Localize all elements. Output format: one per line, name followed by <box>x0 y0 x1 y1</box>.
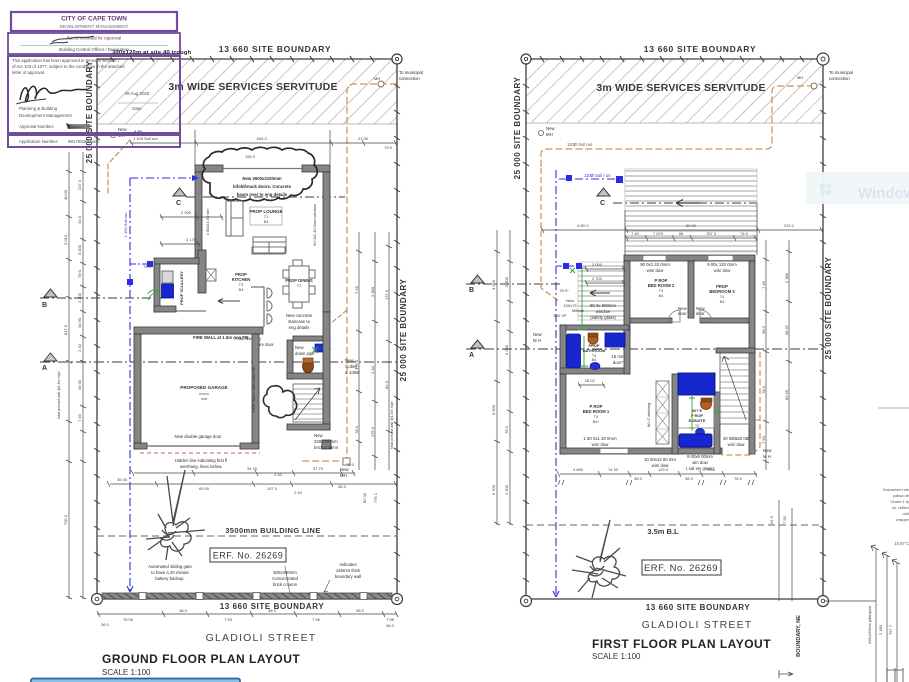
svg-text:2 300: 2 300 <box>504 276 509 287</box>
svg-text:A: A <box>469 352 474 359</box>
svg-text:fire door: fire door <box>258 342 274 347</box>
svg-text:PROP LOUNGE: PROP LOUNGE <box>249 209 282 214</box>
svg-text:13 660 SITE BOUNDARY: 13 660 SITE BOUNDARY <box>646 603 751 612</box>
svg-text:817 0: 817 0 <box>63 324 68 335</box>
svg-text:7 40: 7 40 <box>631 231 640 236</box>
svg-text:New: New <box>314 433 323 438</box>
svg-text:New: New <box>533 332 542 337</box>
svg-text:DEVELOPMENT MANAGEMENT: DEVELOPMENT MANAGEMENT <box>60 24 129 29</box>
svg-text:4 00x14 00 win: 4 00x14 00 win <box>205 209 210 236</box>
svg-text:34 0: 34 0 <box>77 215 82 224</box>
svg-text:2 700: 2 700 <box>592 276 603 281</box>
svg-text:of Act 103 of 1977, subject to: of Act 103 of 1977, subject to the condi… <box>12 64 125 69</box>
svg-text:25 000 SITE BOUNDARY: 25 000 SITE BOUNDARY <box>513 77 522 180</box>
svg-text:ENSUITE: ENSUITE <box>689 418 706 423</box>
svg-text:PROPOSED GARAGE: PROPOSED GARAGE <box>180 385 227 390</box>
svg-text:36 0: 36 0 <box>685 476 694 481</box>
svg-text:25 000 SITE BOUNDARY: 25 000 SITE BOUNDARY <box>824 257 833 360</box>
svg-text:GROUND FLOOR PLAN LAYOUT: GROUND FLOOR PLAN LAYOUT <box>102 652 300 666</box>
svg-text:2 40: 2 40 <box>274 472 283 477</box>
svg-text:B4: B4 <box>592 358 596 362</box>
svg-text:7 96: 7 96 <box>312 617 321 622</box>
svg-text:Galvanised ste: Galvanised ste <box>883 487 909 492</box>
svg-text:78 0: 78 0 <box>707 467 716 472</box>
svg-text:82 0: 82 0 <box>384 380 389 389</box>
svg-text:6 000: 6 000 <box>491 404 496 415</box>
svg-text:New: New <box>546 126 555 131</box>
svg-text:ck, refleci: ck, refleci <box>892 505 909 510</box>
svg-text:4 000: 4 000 <box>491 279 496 290</box>
svg-text:81 99: 81 99 <box>784 389 789 400</box>
svg-text:to have a 20 minute: to have a 20 minute <box>151 570 189 575</box>
svg-text:36 0: 36 0 <box>179 608 188 613</box>
svg-text:140mm thick: 140mm thick <box>336 568 361 573</box>
svg-text:7 46: 7 46 <box>354 285 359 294</box>
svg-text:4 80 C: 4 80 C <box>577 223 589 228</box>
svg-text:300x300mm: 300x300mm <box>273 570 297 575</box>
svg-text:bifold/stack doors. Concrete: bifold/stack doors. Concrete <box>233 184 292 189</box>
svg-text:219 1: 219 1 <box>784 223 795 228</box>
svg-text:battery backup.: battery backup. <box>155 576 184 581</box>
svg-text:PROP DINING: PROP DINING <box>285 278 313 283</box>
svg-text:KITCHEN: KITCHEN <box>232 277 251 282</box>
svg-text:T4: T4 <box>659 289 663 293</box>
svg-text:win dow: win dow <box>692 460 708 465</box>
svg-text:B: B <box>42 302 47 309</box>
svg-text:ERF. No. 26269: ERF. No. 26269 <box>213 551 284 561</box>
svg-text:(safety glass): (safety glass) <box>590 315 616 320</box>
svg-text:98170538/ Bem: 98170538/ Bem <box>68 139 99 144</box>
svg-text:172 0: 172 0 <box>384 289 389 300</box>
svg-text:brick column: brick column <box>314 445 339 450</box>
svg-text:T4: T4 <box>695 424 699 428</box>
svg-text:M H: M H <box>533 338 541 343</box>
svg-text:16 mm: 16 mm <box>611 354 625 359</box>
svg-text:BOUNDARY, NE: BOUNDARY, NE <box>796 615 802 657</box>
svg-text:3m WIDE SERVICES SERVITUDE: 3m WIDE SERVICES SERVITUDE <box>596 82 765 94</box>
svg-text:T3: T3 <box>239 283 243 287</box>
svg-text:110Ø Soil run: 110Ø Soil run <box>567 142 593 147</box>
svg-text:78 0: 78 0 <box>761 385 766 394</box>
svg-text:600 C: 600 C <box>257 136 268 141</box>
svg-text:90 0x1 20 0mm: 90 0x1 20 0mm <box>640 262 670 267</box>
svg-text:3500mm BUILDING LINE: 3500mm BUILDING LINE <box>225 526 321 535</box>
svg-text:38 0: 38 0 <box>761 325 766 334</box>
svg-text:2 180: 2 180 <box>878 624 883 635</box>
svg-text:3 010: 3 010 <box>63 234 68 245</box>
svg-text:78 0*: 78 0* <box>559 288 569 293</box>
svg-text:eng details: eng details <box>289 325 310 330</box>
svg-text:Development Management: Development Management <box>19 113 72 118</box>
svg-text:BED ROOM 1: BED ROOM 1 <box>583 409 610 414</box>
svg-text:door*: door* <box>613 360 624 365</box>
svg-text:340x340mm: 340x340mm <box>314 439 338 444</box>
svg-text:36 00: 36 00 <box>117 477 128 482</box>
svg-text:B4: B4 <box>720 300 725 304</box>
svg-text:2 300: 2 300 <box>504 484 509 495</box>
svg-text:78 0: 78 0 <box>504 425 509 434</box>
svg-text:total precast wall @1.8m high: total precast wall @1.8m high <box>390 401 394 448</box>
svg-text:B4: B4 <box>659 294 664 298</box>
svg-text:T4: T4 <box>720 295 724 299</box>
svg-text:78 0: 78 0 <box>354 425 359 434</box>
svg-text:776 1: 776 1 <box>373 492 378 503</box>
svg-text:7 46: 7 46 <box>761 280 766 289</box>
svg-text:win/ dow: win/ dow <box>647 268 665 273</box>
svg-text:This application has been: This application has been approved in te… <box>12 58 120 63</box>
svg-text:74 30: 74 30 <box>608 467 619 472</box>
svg-text:107 0: 107 0 <box>267 486 278 491</box>
svg-text:40 00: 40 00 <box>63 189 68 200</box>
svg-text:40 0Ø&50 0Ø: 40 0Ø&50 0Ø <box>723 436 750 441</box>
svg-text:To municipal: To municipal <box>399 70 423 75</box>
svg-text:Automated sliding gate: Automated sliding gate <box>148 564 192 569</box>
svg-text:176 0: 176 0 <box>354 359 359 370</box>
svg-text:90 0x1 40 0mm window: 90 0x1 40 0mm window <box>312 204 317 246</box>
svg-text:mono: mono <box>199 392 209 396</box>
svg-text:C: C <box>176 200 181 207</box>
svg-text:25 000 SITE BOUNDARY: 25 000 SITE BOUNDARY <box>399 279 408 382</box>
svg-text:New: New <box>295 345 304 350</box>
svg-text:T2: T2 <box>297 284 301 288</box>
svg-text:To municipal: To municipal <box>829 70 853 75</box>
svg-text:beam over to eng details: beam over to eng details <box>237 192 288 197</box>
svg-text:Approval Number:: Approval Number: <box>19 124 54 129</box>
svg-text:win/ dow: win/ dow <box>714 268 732 273</box>
svg-text:1 80 0x1 20 0mm: 1 80 0x1 20 0mm <box>583 436 617 441</box>
svg-text:10 00x12 00 mm: 10 00x12 00 mm <box>644 457 676 462</box>
svg-text:175 0: 175 0 <box>370 426 375 437</box>
svg-text:Grade 1 ty: Grade 1 ty <box>890 499 909 504</box>
svg-text:28 0C: 28 0C <box>585 378 596 383</box>
svg-text:MH: MH <box>340 473 347 478</box>
svg-text:MH: MH <box>546 132 553 137</box>
svg-text:34 90: 34 90 <box>77 317 82 328</box>
svg-text:Application Number:: Application Number: <box>19 139 59 144</box>
svg-text:T1: T1 <box>264 215 268 219</box>
svg-text:win/ dow: win/ dow <box>728 442 746 447</box>
svg-text:7 93: 7 93 <box>224 617 233 622</box>
svg-text:total precast wall @1.8m high: total precast wall @1.8m high <box>57 371 61 418</box>
svg-text:Indicates: Indicates <box>339 562 356 567</box>
svg-text:CITY OF CAPE TOWN: CITY OF CAPE TOWN <box>61 16 127 23</box>
svg-text:PROP SCULLERY: PROP SCULLERY <box>179 271 184 305</box>
svg-text:MH: MH <box>374 76 380 81</box>
svg-text:BATHROOM: BATHROOM <box>583 348 606 353</box>
svg-text:2 000: 2 000 <box>592 262 603 267</box>
svg-text:78 0: 78 0 <box>77 269 82 278</box>
svg-text:08 Aug 2020: 08 Aug 2020 <box>125 91 150 96</box>
svg-text:9 00x6 00mm: 9 00x6 00mm <box>687 454 713 459</box>
svg-text:7 98: 7 98 <box>386 617 395 622</box>
svg-text:123 0: 123 0 <box>658 467 669 472</box>
svg-text:37 70: 37 70 <box>313 466 324 471</box>
svg-text:New: New <box>118 127 127 132</box>
svg-text:767 3: 767 3 <box>706 231 717 236</box>
svg-text:36 0: 36 0 <box>338 484 347 489</box>
svg-text:7 90: 7 90 <box>782 515 787 524</box>
svg-text:199 0: 199 0 <box>245 154 256 159</box>
svg-text:New 3600x2100mm: New 3600x2100mm <box>242 176 281 181</box>
svg-text:1 100 Soil run: 1 100 Soil run <box>123 213 128 238</box>
svg-text:Date: Date <box>132 106 142 111</box>
svg-text:60 00: 60 00 <box>199 486 210 491</box>
svg-text:door: door <box>678 311 687 316</box>
svg-text:74 0: 74 0 <box>740 231 749 236</box>
svg-text:7 90: 7 90 <box>761 435 766 444</box>
svg-text:2 40: 2 40 <box>370 365 375 374</box>
svg-text:96: 96 <box>679 231 684 236</box>
svg-text:B: B <box>469 287 474 294</box>
svg-text:Hidden line indicating first f: Hidden line indicating first fl <box>175 458 227 463</box>
svg-text:78 0: 78 0 <box>143 264 152 269</box>
svg-text:797 7: 797 7 <box>888 624 893 635</box>
svg-text:Planning & Building: Planning & Building <box>19 106 58 111</box>
svg-text:B4: B4 <box>264 220 269 224</box>
svg-text:2 380: 2 380 <box>370 286 375 297</box>
svg-text:boundary wall: boundary wall <box>335 574 362 579</box>
svg-text:W.I.C shelving: W.I.C shelving <box>647 403 651 427</box>
svg-text:B4: B4 <box>239 288 244 292</box>
svg-text:MH: MH <box>797 75 803 80</box>
svg-text:1 100 Soil run: 1 100 Soil run <box>133 136 158 141</box>
svg-text:GLADIOLI STREET: GLADIOLI STREET <box>206 632 317 644</box>
svg-text:76 0: 76 0 <box>346 462 355 467</box>
svg-text:3m WIDE SERVICES SERVITUDE: 3m WIDE SERVICES SERVITUDE <box>168 81 337 93</box>
svg-text:New: New <box>763 448 772 453</box>
svg-text:letter of approval.: letter of approval. <box>12 70 45 75</box>
svg-text:staircase to: staircase to <box>288 319 311 324</box>
svg-text:overhang, lines below.: overhang, lines below. <box>180 464 223 469</box>
svg-text:61 9: 61 9 <box>769 515 774 524</box>
svg-text:76 00: 76 00 <box>123 617 134 622</box>
svg-text:brick column: brick column <box>273 582 298 587</box>
svg-text:6 700: 6 700 <box>491 484 496 495</box>
svg-text:4 890: 4 890 <box>573 467 584 472</box>
svg-text:Windows: Windows <box>858 185 909 202</box>
svg-text:unti: unti <box>903 511 909 516</box>
svg-text:36 0: 36 0 <box>268 608 277 613</box>
svg-text:82 00: 82 00 <box>362 492 367 503</box>
svg-text:79 0: 79 0 <box>384 145 393 150</box>
svg-text:2 40: 2 40 <box>77 343 82 352</box>
svg-text:21 90: 21 90 <box>358 136 369 141</box>
svg-text:2 380: 2 380 <box>784 272 789 283</box>
svg-text:3 000: 3 000 <box>504 344 509 355</box>
svg-text:A: A <box>42 365 47 372</box>
svg-text:2 300: 2 300 <box>77 292 82 303</box>
svg-text:T4: T4 <box>594 415 598 419</box>
svg-text:SCALE 1:100: SCALE 1:100 <box>592 652 641 661</box>
svg-text:3.5m B.L: 3.5m B.L <box>647 527 679 536</box>
svg-text:36 0: 36 0 <box>386 623 395 628</box>
svg-text:BED ROOM 2: BED ROOM 2 <box>648 283 675 288</box>
svg-text:7 40: 7 40 <box>77 413 82 422</box>
svg-text:9 00x 120 0mm: 9 00x 120 0mm <box>707 262 737 267</box>
svg-text:38 0: 38 0 <box>634 476 643 481</box>
svg-text:1 170: 1 170 <box>186 237 197 242</box>
svg-text:New: New <box>340 467 349 472</box>
svg-text:Concentrated: Concentrated <box>272 576 298 581</box>
svg-text:C: C <box>600 200 605 207</box>
svg-text:36 0: 36 0 <box>356 608 365 613</box>
svg-text:38 47: 38 47 <box>784 324 789 335</box>
svg-text:FIRE WALL with beam fill: FIRE WALL with beam fill <box>251 367 256 412</box>
svg-text:60 00: 60 00 <box>686 223 697 228</box>
svg-text:New concrete: New concrete <box>286 313 313 318</box>
svg-text:2 000: 2 000 <box>181 210 192 215</box>
svg-text:win/ dow: win/ dow <box>592 442 610 447</box>
svg-text:10.97 C: 10.97 C <box>894 541 909 546</box>
svg-text:500 VP: 500 VP <box>553 313 566 318</box>
svg-text:300x120m at site 40 trough: 300x120m at site 40 trough <box>112 50 192 56</box>
svg-text:wrappe: wrappe <box>896 517 909 522</box>
svg-text:connection: connection <box>399 76 420 81</box>
svg-text:2 40: 2 40 <box>294 490 303 495</box>
svg-text:13 660 SITE BOUNDARY: 13 660 SITE BOUNDARY <box>219 44 331 54</box>
svg-text:36 0: 36 0 <box>101 622 110 627</box>
svg-text:New double garage door: New double garage door <box>174 434 222 439</box>
svg-text:M H: M H <box>763 454 771 459</box>
svg-text:340x340mm pillar/post: 340x340mm pillar/post <box>868 605 872 644</box>
svg-text:700 0: 700 0 <box>63 514 68 525</box>
svg-text:M6mm: M6mm <box>572 308 585 313</box>
svg-text:palisa de: palisa de <box>893 493 909 498</box>
svg-text:34 90: 34 90 <box>77 379 82 390</box>
svg-text:BEDROOM 3: BEDROOM 3 <box>709 289 735 294</box>
svg-text:FIRST FLOOR PLAN LAYOUT: FIRST FLOOR PLAN LAYOUT <box>592 637 771 651</box>
svg-text:90 0x 900mm: 90 0x 900mm <box>590 303 616 308</box>
svg-text:window: window <box>596 309 611 314</box>
svg-text:110Ø Soil r un: 110Ø Soil r un <box>584 173 611 178</box>
svg-text:76 0: 76 0 <box>734 476 743 481</box>
svg-text:connection: connection <box>829 76 850 81</box>
svg-text:3 000: 3 000 <box>77 244 82 255</box>
svg-text:217 0: 217 0 <box>77 179 82 190</box>
svg-text:GLADIOLI STREET: GLADIOLI STREET <box>642 619 753 631</box>
svg-text:down pipe: down pipe <box>295 351 315 356</box>
svg-text:door: door <box>696 311 705 316</box>
svg-text:13 660 SITE BOUNDARY: 13 660 SITE BOUNDARY <box>644 44 756 54</box>
svg-text:roof: roof <box>201 397 208 401</box>
svg-text:ERF. No. 26269: ERF. No. 26269 <box>644 563 718 574</box>
svg-text:7 679: 7 679 <box>653 231 664 236</box>
svg-text:SCALE 1:100: SCALE 1:100 <box>102 668 151 677</box>
svg-text:B4+: B4+ <box>593 420 601 424</box>
svg-text:34 40: 34 40 <box>247 466 258 471</box>
